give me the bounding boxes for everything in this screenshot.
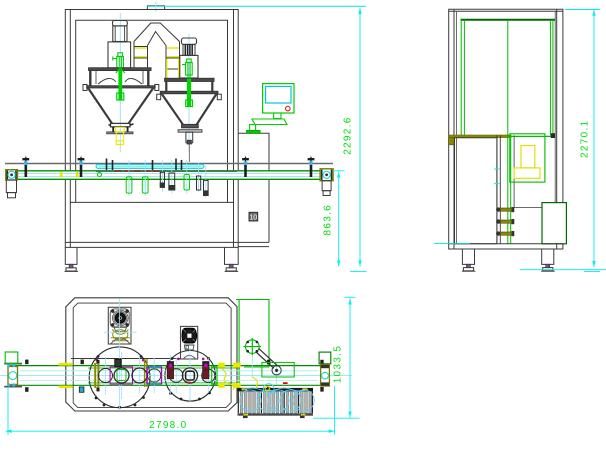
- svg-text:863.6: 863.6: [323, 204, 334, 236]
- svg-text:1033.5: 1033.5: [333, 345, 344, 383]
- svg-text:10: 10: [249, 215, 257, 222]
- svg-text:2798.0: 2798.0: [149, 420, 187, 431]
- svg-text:2292.6: 2292.6: [343, 116, 354, 154]
- svg-text:2270.1: 2270.1: [580, 120, 591, 158]
